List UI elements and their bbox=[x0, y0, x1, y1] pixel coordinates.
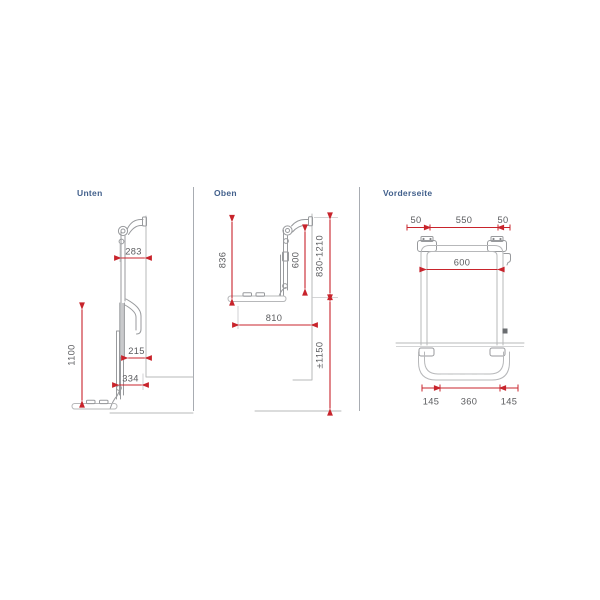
svg-text:830-1210: 830-1210 bbox=[315, 235, 325, 277]
mount-bracket-left bbox=[418, 237, 437, 252]
svg-text:215: 215 bbox=[128, 346, 145, 356]
bumper-line bbox=[396, 343, 524, 347]
svg-text:360: 360 bbox=[461, 397, 478, 407]
svg-text:600: 600 bbox=[291, 252, 301, 269]
svg-text:550: 550 bbox=[456, 215, 473, 225]
latch-hook bbox=[504, 254, 511, 266]
dim-600-side: 600 bbox=[291, 232, 306, 289]
dim-215: 215 bbox=[128, 346, 145, 358]
dim-283: 283 bbox=[120, 243, 145, 262]
view-label-vorderseite: Vorderseite bbox=[383, 188, 432, 198]
latch-clip bbox=[503, 329, 508, 334]
view-label-oben: Oben bbox=[214, 188, 237, 198]
dim-810: 810 bbox=[238, 306, 311, 329]
vorderseite-front-view-drawing: 50 550 50 600 bbox=[380, 200, 530, 420]
dimension-diagram-page: Unten Oben Vorderseite bbox=[0, 0, 600, 600]
view-label-unten: Unten bbox=[77, 188, 103, 198]
platform-front bbox=[419, 348, 510, 380]
svg-text:50: 50 bbox=[410, 215, 421, 225]
svg-text:145: 145 bbox=[423, 397, 440, 407]
dim-1150: ±1150 bbox=[312, 298, 338, 409]
svg-text:145: 145 bbox=[501, 397, 518, 407]
platform-rail bbox=[228, 296, 286, 302]
svg-text:1100: 1100 bbox=[67, 344, 77, 365]
dim-836: 836 bbox=[218, 222, 233, 299]
dim-1100: 1100 bbox=[67, 310, 83, 401]
pivot-bracket bbox=[118, 226, 127, 235]
pivot-bracket bbox=[283, 226, 292, 235]
svg-text:334: 334 bbox=[122, 373, 139, 383]
dim-600-front: 600 bbox=[427, 258, 498, 270]
section-divider-2 bbox=[359, 187, 360, 411]
mount-bracket-right bbox=[488, 237, 507, 252]
dim-830-1210: 830-1210 bbox=[314, 218, 338, 294]
foot-bracket bbox=[110, 391, 120, 409]
dim-bottom-span: 145 360 145 bbox=[422, 385, 518, 407]
svg-text:810: 810 bbox=[266, 313, 283, 323]
dim-top-span: 50 550 50 bbox=[407, 215, 510, 231]
svg-text:836: 836 bbox=[218, 252, 228, 269]
unten-side-view-drawing: 283 1100 215 334 bbox=[60, 200, 200, 420]
svg-text:±1150: ±1150 bbox=[315, 342, 325, 369]
svg-text:50: 50 bbox=[497, 215, 508, 225]
folded-arm bbox=[126, 299, 141, 334]
dim-334: 334 bbox=[119, 373, 143, 390]
svg-text:283: 283 bbox=[125, 246, 142, 256]
oben-side-view-drawing: 836 600 830-1210 ±1150 810 bbox=[200, 200, 355, 420]
svg-text:600: 600 bbox=[454, 258, 471, 268]
